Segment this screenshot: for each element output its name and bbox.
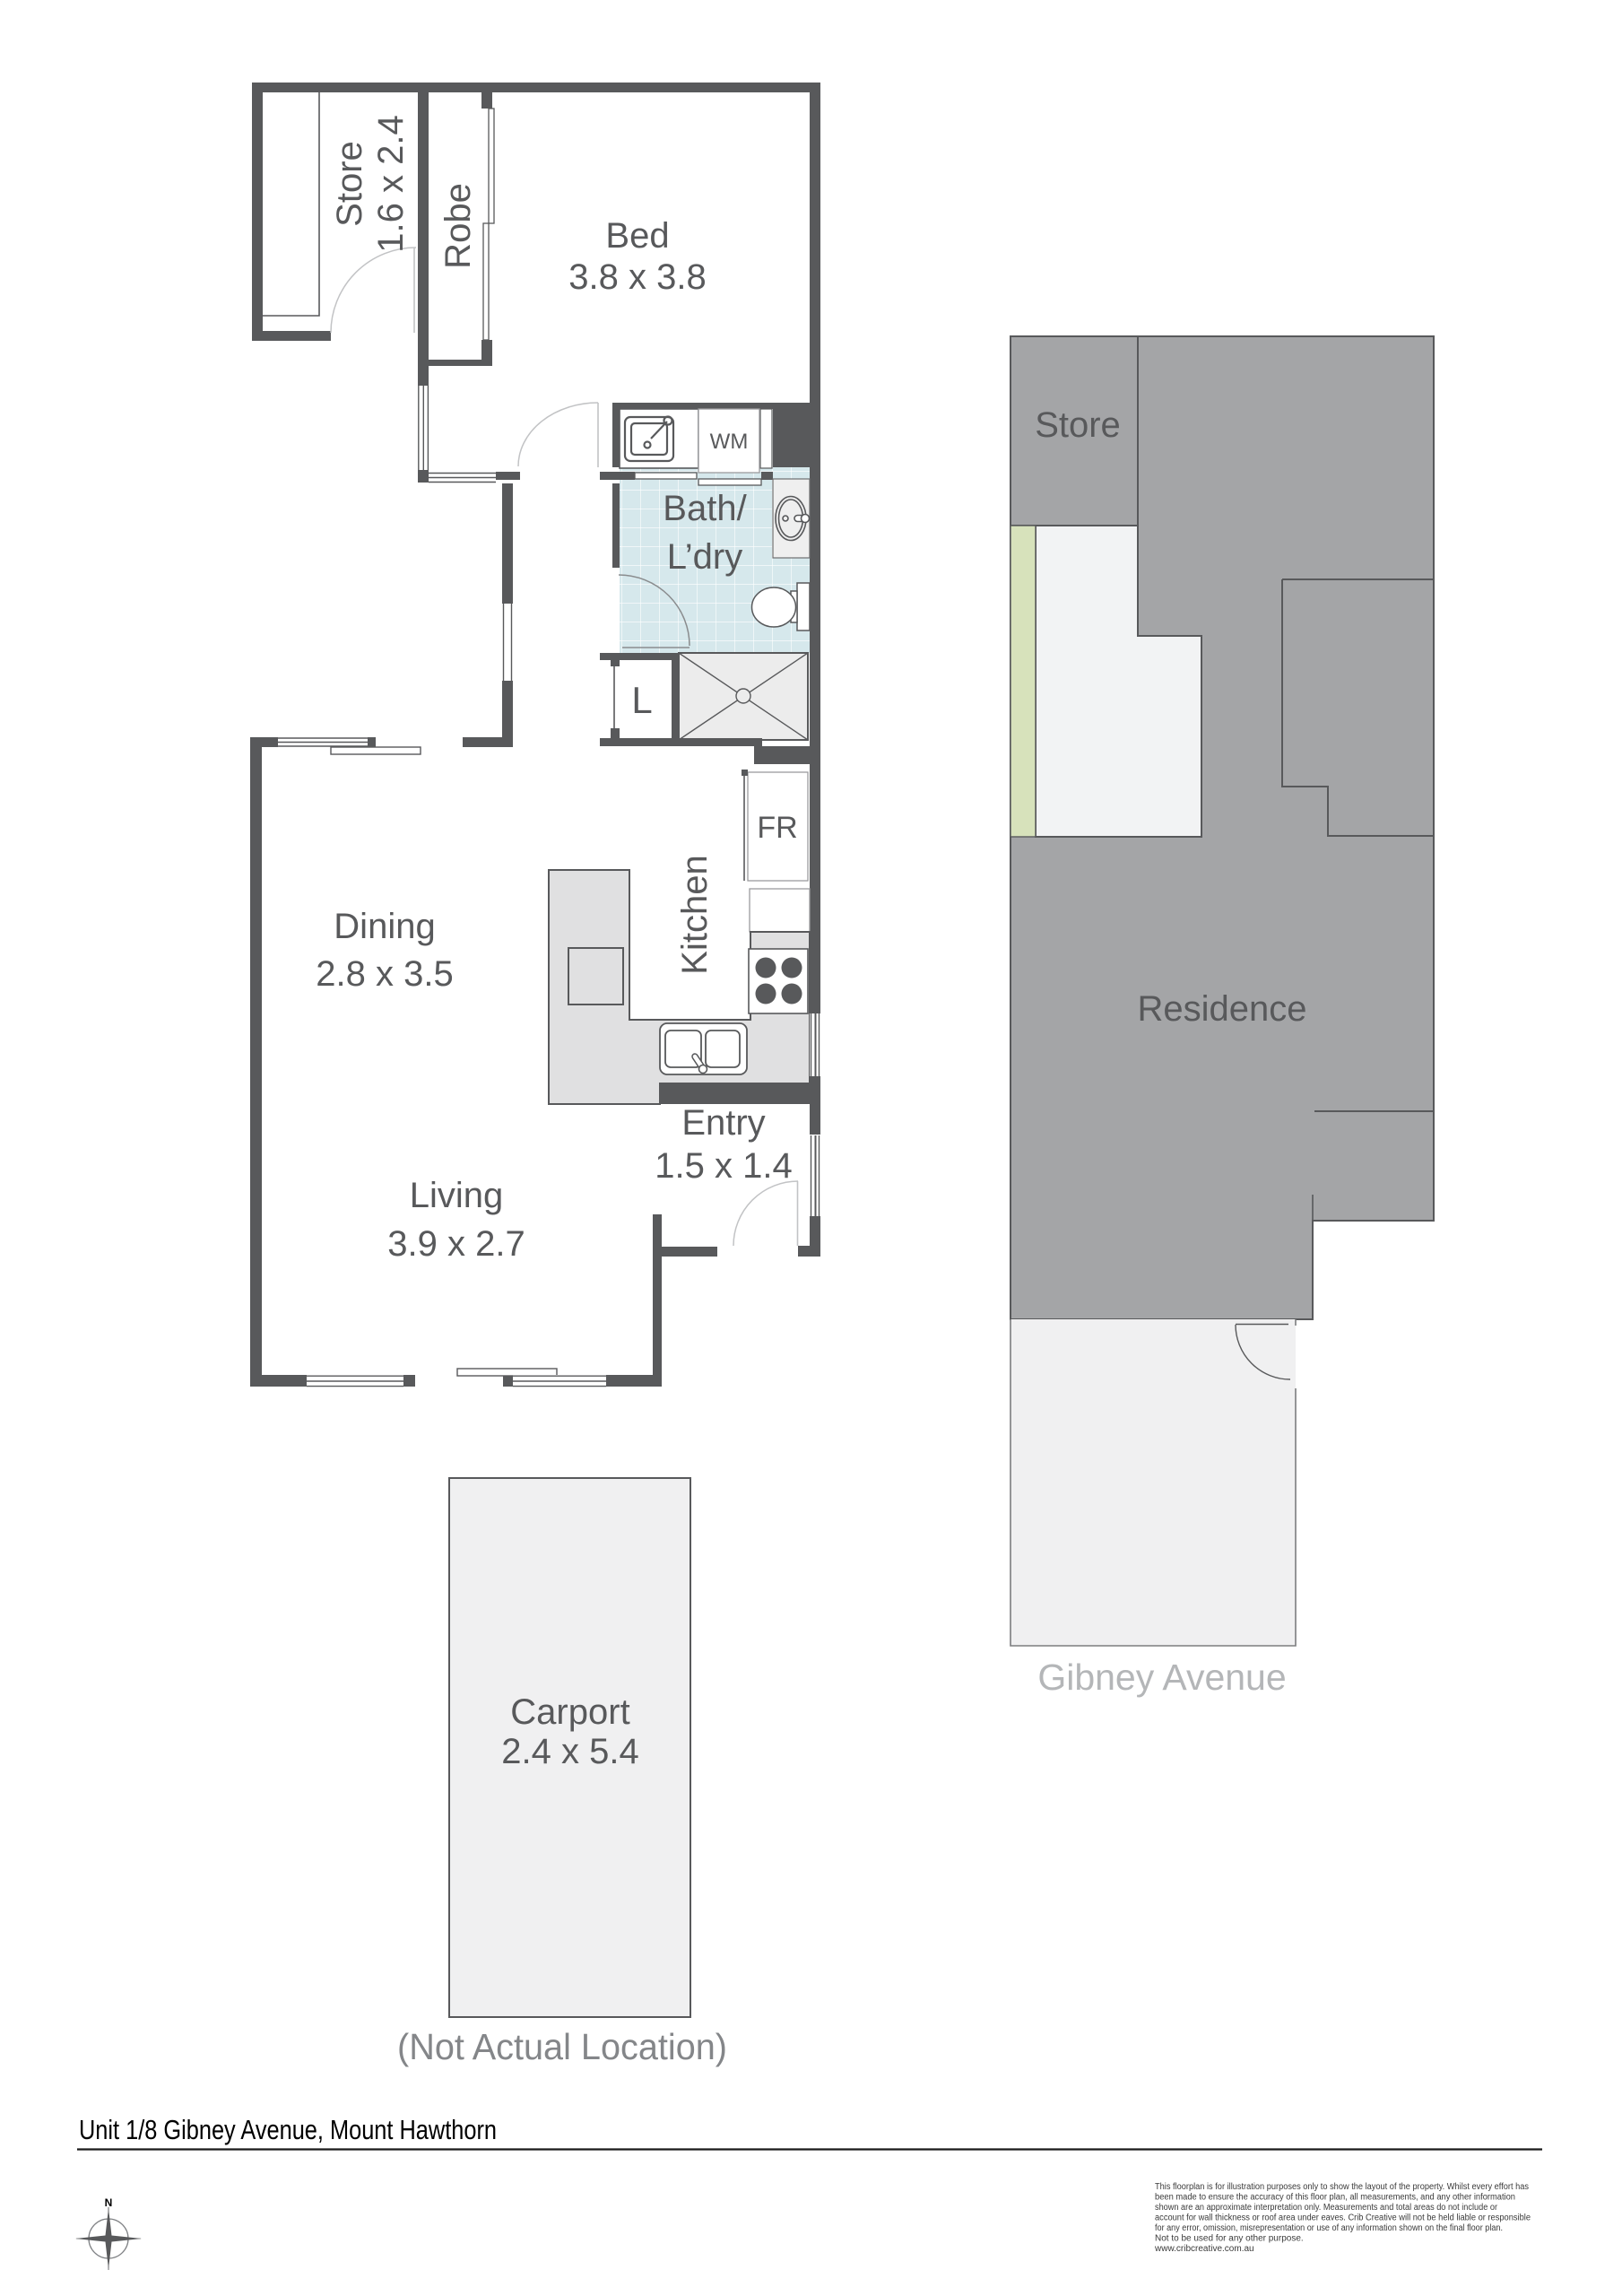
svg-text:3.9 x 2.7: 3.9 x 2.7 [387,1224,525,1264]
svg-text:Robe: Robe [438,183,478,269]
svg-text:2.4 x 5.4: 2.4 x 5.4 [501,1732,638,1771]
svg-text:L: L [631,679,652,721]
svg-text:Kitchen: Kitchen [675,855,715,974]
svg-text:Not to be used for any other p: Not to be used for any other purpose. [1155,2234,1304,2244]
svg-text:account for wall thickness or: account for wall thickness or roof area … [1155,2213,1531,2223]
svg-text:Bed: Bed [605,216,669,256]
svg-text:3.8 x 3.8: 3.8 x 3.8 [568,257,706,297]
svg-text:Gibney Avenue: Gibney Avenue [1037,1657,1286,1698]
svg-text:Store: Store [1035,405,1121,445]
svg-text:WM: WM [710,430,749,454]
svg-text:N: N [105,2196,113,2209]
svg-text:Unit 1/8 Gibney Avenue, Mount: Unit 1/8 Gibney Avenue, Mount Hawthorn [79,2114,497,2145]
svg-text:This floorplan is for illustra: This floorplan is for illustration purpo… [1155,2182,1529,2192]
svg-text:Residence: Residence [1137,989,1306,1029]
svg-text:L’dry: L’dry [667,537,743,577]
svg-text:1.5 x 1.4: 1.5 x 1.4 [655,1146,792,1186]
svg-text:Entry: Entry [681,1103,765,1143]
svg-text:been made to ensure the accura: been made to ensure the accuracy of this… [1155,2193,1515,2203]
svg-text:shown are an approximate inter: shown are an approximate interpretation … [1155,2203,1498,2213]
svg-text:Store: Store [330,141,369,227]
svg-text:(Not Actual Location): (Not Actual Location) [397,2026,727,2067]
svg-text:www.cribcreative.com.au: www.cribcreative.com.au [1154,2244,1254,2254]
svg-text:FR: FR [757,811,797,845]
svg-text:Bath/: Bath/ [663,489,747,528]
svg-text:Carport: Carport [510,1692,629,1732]
svg-text:2.8 x 3.5: 2.8 x 3.5 [316,954,453,994]
svg-text:Living: Living [410,1176,504,1215]
svg-text:for any error, omission, misre: for any error, omission, misrepresentati… [1155,2223,1503,2233]
svg-text:Dining: Dining [334,907,435,946]
svg-text:1.6 x 2.4: 1.6 x 2.4 [371,115,411,252]
